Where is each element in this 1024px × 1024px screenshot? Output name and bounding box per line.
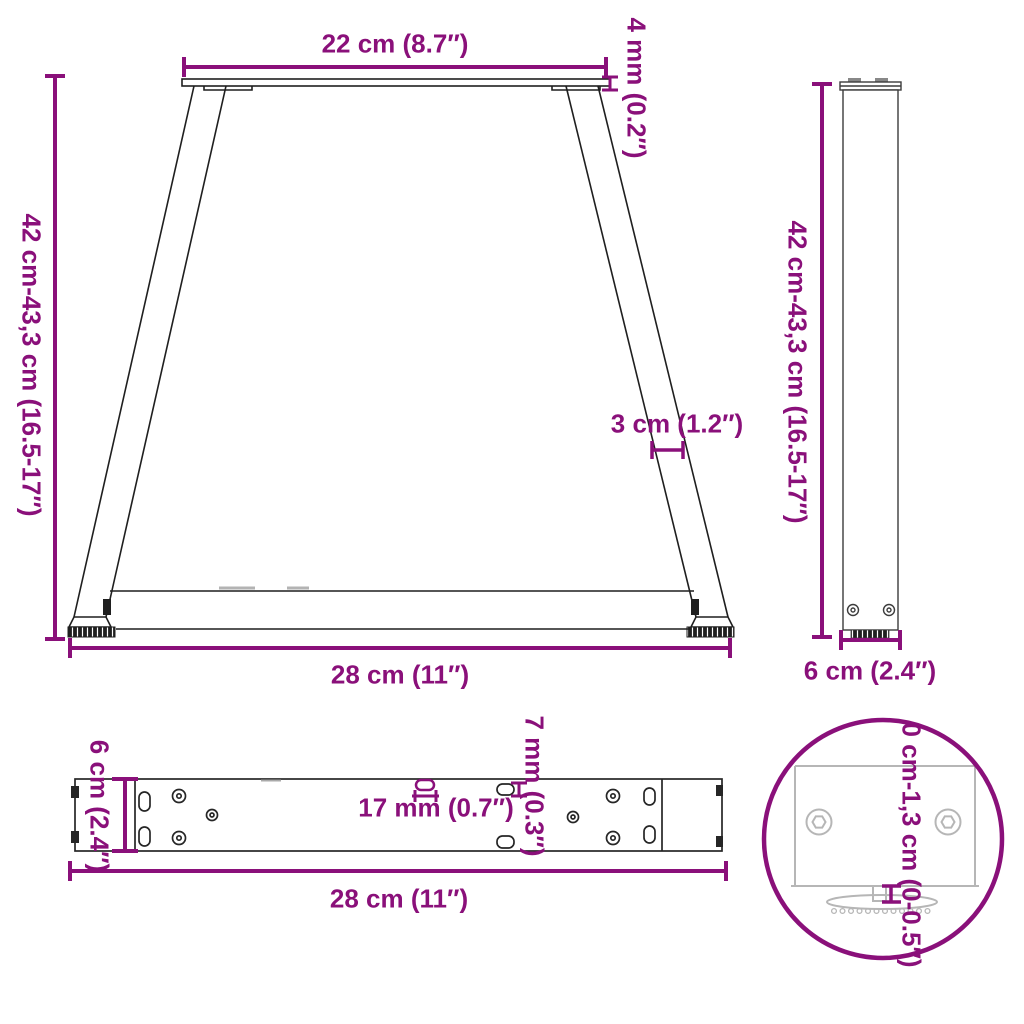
- plate-slot-width-label: 7 mm (0.3″): [519, 715, 550, 856]
- front-view-drawing: [68, 79, 734, 637]
- diagram-artwork: [0, 0, 1024, 1024]
- plate-slot-length-label: 17 mm (0.7″): [358, 793, 514, 824]
- dimension-diagram: 22 cm (8.7″) 4 mm (0.2″) 42 cm-43,3 cm (…: [0, 0, 1024, 1024]
- foot-adjustment-label: 0 cm-1,3 cm (0-0.5″): [896, 722, 927, 967]
- side-height-label: 42 cm-43,3 cm (16.5-17″): [782, 221, 813, 524]
- detail-zoom-circle: [764, 720, 1002, 958]
- front-bottom-width-label: 28 cm (11″): [331, 660, 469, 691]
- foot-detail-drawing: [791, 766, 979, 913]
- plate-depth-label: 6 cm (2.4″): [84, 740, 115, 872]
- plate-width-label: 28 cm (11″): [330, 884, 468, 915]
- front-leg-width-label: 3 cm (1.2″): [611, 409, 743, 440]
- front-height-label: 42 cm-43,3 cm (16.5-17″): [16, 214, 47, 517]
- front-plate-thickness-label: 4 mm (0.2″): [621, 17, 652, 158]
- side-view-drawing: [840, 78, 901, 638]
- front-top-width-label: 22 cm (8.7″): [322, 29, 469, 60]
- dimension-lines: [45, 57, 901, 902]
- side-depth-label: 6 cm (2.4″): [804, 656, 936, 687]
